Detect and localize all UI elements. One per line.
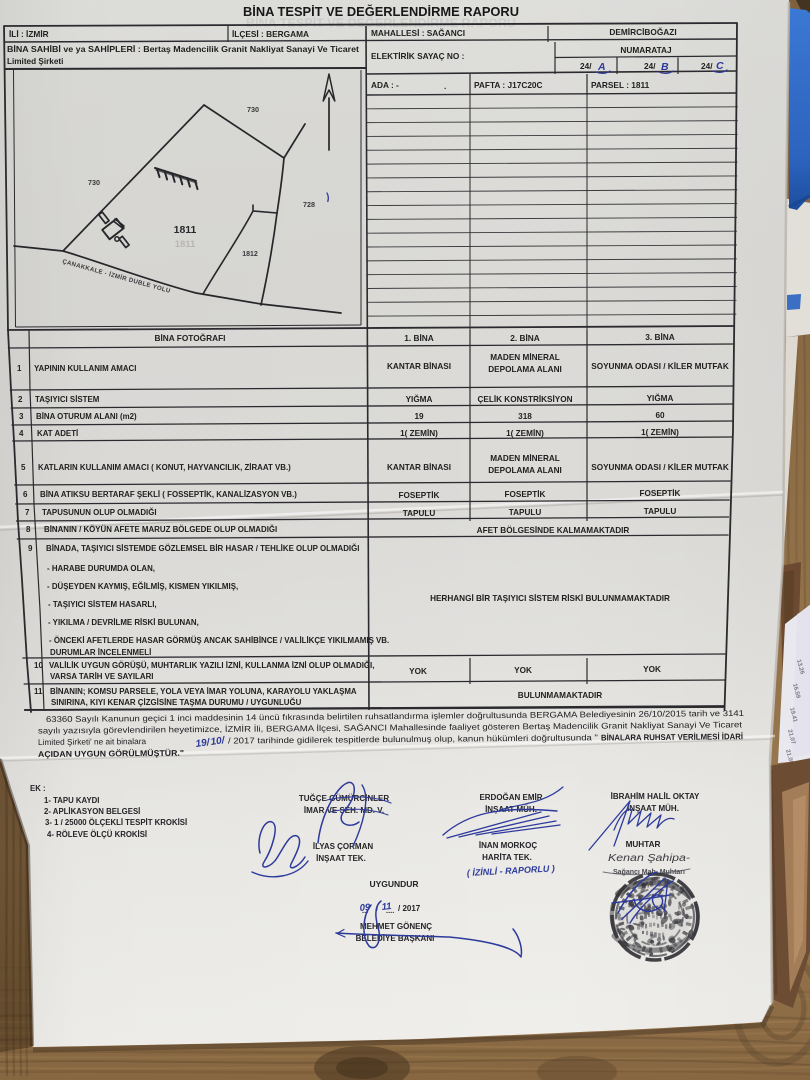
svg-text:İLYAS ÇORMAN: İLYAS ÇORMAN xyxy=(313,842,374,851)
svg-text:HERHANGİ BİR TAŞIYICI SİSTEM R: HERHANGİ BİR TAŞIYICI SİSTEM RİSKİ BULUN… xyxy=(430,593,670,603)
svg-text:2: 2 xyxy=(18,395,23,404)
svg-text:1811: 1811 xyxy=(174,224,197,236)
svg-text:BİNADA, TAŞIYICI SİSTEMDE GÖZL: BİNADA, TAŞIYICI SİSTEMDE GÖZLEMSEL BİR … xyxy=(46,544,359,553)
svg-text:YIĞMA: YIĞMA xyxy=(647,392,674,403)
svg-text:730: 730 xyxy=(247,105,259,114)
svg-text:1. BİNA: 1. BİNA xyxy=(404,333,434,343)
svg-text:Kenan Şahipa-: Kenan Şahipa- xyxy=(608,853,691,864)
svg-text:YOK: YOK xyxy=(409,667,427,676)
svg-text:B: B xyxy=(661,61,669,73)
svg-text:SOYUNMA ODASI / KİLER MUTFAK: SOYUNMA ODASI / KİLER MUTFAK xyxy=(591,361,729,371)
svg-text:1- TAPU KAYDI: 1- TAPU KAYDI xyxy=(44,796,99,805)
svg-text:6: 6 xyxy=(23,490,28,499)
svg-text:SOYUNMA ODASI / KİLER MUTFAK: SOYUNMA ODASI / KİLER MUTFAK xyxy=(591,462,729,472)
svg-text:MEHMET GÖNENÇ: MEHMET GÖNENÇ xyxy=(360,922,432,931)
svg-text:2- APLİKASYON BELGESİ: 2- APLİKASYON BELGESİ xyxy=(44,807,140,816)
svg-text:BİNANIN / KÖYÜN AFETE MARUZ BÖ: BİNANIN / KÖYÜN AFETE MARUZ BÖLGEDE OLUP… xyxy=(44,525,277,534)
svg-text:ADA : -: ADA : - xyxy=(371,80,399,90)
svg-text:C: C xyxy=(716,60,724,72)
svg-text:ÇELİK KONSTRİKSİYON: ÇELİK KONSTRİKSİYON xyxy=(477,394,572,404)
svg-text:DURUMLAR İNCELENMELİ: DURUMLAR İNCELENMELİ xyxy=(50,648,151,657)
svg-text:SINIRINA, KIYI KENAR ÇİZGİSİNE: SINIRINA, KIYI KENAR ÇİZGİSİNE TAŞMA DUR… xyxy=(51,698,302,707)
svg-text:Limited Şirketi: Limited Şirketi xyxy=(7,57,63,66)
svg-text:5: 5 xyxy=(21,463,26,472)
svg-text:.: . xyxy=(444,81,446,91)
svg-text:1( ZEMİN): 1( ZEMİN) xyxy=(506,428,544,438)
svg-text:3. BİNA: 3. BİNA xyxy=(645,332,675,342)
svg-text:11: 11 xyxy=(381,901,392,913)
svg-text:BİNALARA RUHSAT VERİLMESİ İDAR: BİNALARA RUHSAT VERİLMESİ İDARİ xyxy=(601,731,743,742)
svg-text:ERDOĞAN EMİR: ERDOĞAN EMİR xyxy=(479,793,542,802)
svg-text:TAPUSUNUN OLUP OLMADIĞI: TAPUSUNUN OLUP OLMADIĞI xyxy=(42,508,157,517)
svg-text:TAPULU: TAPULU xyxy=(403,509,436,518)
svg-text:MADEN MİNERAL: MADEN MİNERAL xyxy=(490,453,560,463)
svg-text:A: A xyxy=(597,61,606,73)
svg-text:İNŞAAT MÜH.: İNŞAAT MÜH. xyxy=(627,804,679,813)
svg-text:ELEKTİRİK SAYAÇ NO :: ELEKTİRİK SAYAÇ NO : xyxy=(371,51,464,61)
svg-text:TAŞIYICI SİSTEM: TAŞIYICI SİSTEM xyxy=(35,395,100,404)
svg-text:DEPOLAMA ALANI: DEPOLAMA ALANI xyxy=(488,365,562,374)
svg-text:İLÇESİ : BERGAMA: İLÇESİ : BERGAMA xyxy=(232,29,309,39)
svg-text:PARSEL : 1811: PARSEL : 1811 xyxy=(591,80,650,90)
svg-text:İNŞAAT TEK.: İNŞAAT TEK. xyxy=(316,854,366,863)
svg-text:İNAN MORKOÇ: İNAN MORKOÇ xyxy=(479,841,537,850)
svg-text:MADEN MİNERAL: MADEN MİNERAL xyxy=(490,352,560,362)
svg-text:- HARABE DURUMDA OLAN,: - HARABE DURUMDA OLAN, xyxy=(47,564,155,573)
svg-text:DEPOLAMA ALANI: DEPOLAMA ALANI xyxy=(488,466,562,475)
svg-text:7: 7 xyxy=(25,508,30,517)
svg-text:Limited Şirketi' ne ait bi: Limited Şirketi' ne ait binalara xyxy=(38,736,147,747)
svg-text:YIĞMA: YIĞMA xyxy=(406,393,433,404)
svg-text:BİNA OTURUM ALANI (m2): BİNA OTURUM ALANI (m2) xyxy=(36,412,137,421)
svg-text:24/: 24/ xyxy=(580,61,592,71)
svg-text:1( ZEMİN): 1( ZEMİN) xyxy=(641,427,679,437)
svg-text:BİNANIN; KOMSU PARSELE, YOLA V: BİNANIN; KOMSU PARSELE, YOLA VEYA İMAR Y… xyxy=(50,687,357,696)
svg-text:1812: 1812 xyxy=(242,251,258,258)
svg-text:VALİLİK UYGUN GÖRÜŞÜ, MUHTARLI: VALİLİK UYGUN GÖRÜŞÜ, MUHTARLIK YAZILI İ… xyxy=(49,661,374,670)
svg-text:3- 1 / 25000 ÖLÇEKLİ TESPİT K: 3- 1 / 25000 ÖLÇEKLİ TESPİT KROKİSİ xyxy=(45,818,187,827)
svg-text:EK :: EK : xyxy=(30,784,46,793)
svg-text:TAPULU: TAPULU xyxy=(509,508,542,517)
svg-text:FOSEPTİK: FOSEPTİK xyxy=(505,489,546,499)
svg-text:İBRAHİM HALİL OKTAY: İBRAHİM HALİL OKTAY xyxy=(611,792,700,801)
svg-text:11: 11 xyxy=(34,687,43,696)
svg-text:YOK: YOK xyxy=(514,666,532,675)
svg-text:- ÖNCEKİ AFETLERDE HASAR GÖRMÜ: - ÖNCEKİ AFETLERDE HASAR GÖRMÜŞ ANCAK SA… xyxy=(49,636,389,645)
svg-text:BİNA FOTOĞRAFI: BİNA FOTOĞRAFI xyxy=(155,332,226,343)
svg-text:KANTAR BİNASI: KANTAR BİNASI xyxy=(387,462,451,472)
svg-text:KAT ADETİ: KAT ADETİ xyxy=(37,429,78,438)
svg-text:730: 730 xyxy=(88,178,100,187)
svg-text:24/: 24/ xyxy=(701,61,713,71)
svg-text:DEMİRCİBOĞAZI: DEMİRCİBOĞAZI xyxy=(609,26,676,37)
svg-text:1( ZEMİN): 1( ZEMİN) xyxy=(400,428,438,438)
svg-text:- DÜŞEYDEN KAYMIŞ, EĞİLMİŞ, KI: - DÜŞEYDEN KAYMIŞ, EĞİLMİŞ, KISMEN YIKIL… xyxy=(47,582,238,591)
svg-text:- YIKILMA / DEVRİLME RİSKİ BUL: - YIKILMA / DEVRİLME RİSKİ BULUNAN, xyxy=(48,618,199,627)
svg-text:9: 9 xyxy=(28,544,33,553)
svg-text:FOSEPTİK: FOSEPTİK xyxy=(640,488,681,498)
svg-text:1811: 1811 xyxy=(175,239,196,250)
svg-text:/ 2017: / 2017 xyxy=(398,904,421,913)
svg-text:4: 4 xyxy=(19,429,24,438)
svg-text:VARSA TARİH VE SAYILARI: VARSA TARİH VE SAYILARI xyxy=(50,672,153,681)
svg-text:YAPININ KULLANIM AMACI: YAPININ KULLANIM AMACI xyxy=(34,364,136,373)
svg-text:İLİ : İZMİR: İLİ : İZMİR xyxy=(9,29,49,39)
svg-text:UYGUNDUR: UYGUNDUR xyxy=(369,879,418,889)
svg-text:318: 318 xyxy=(518,412,532,421)
svg-text:8: 8 xyxy=(26,525,31,534)
svg-text:1: 1 xyxy=(17,364,22,373)
svg-text:MAHALLESİ : SAĞANCI: MAHALLESİ : SAĞANCI xyxy=(371,27,465,38)
svg-text:- TAŞIYICI SİSTEM HASARLI,: - TAŞIYICI SİSTEM HASARLI, xyxy=(48,600,157,609)
svg-text:BİNA SAHİBİ ve ya SAHİPLERİ :: BİNA SAHİBİ ve ya SAHİPLERİ : Bertaş Mad… xyxy=(7,44,359,54)
svg-text:BULUNMAMAKTADIR: BULUNMAMAKTADIR xyxy=(518,691,603,700)
svg-text:10: 10 xyxy=(34,661,43,670)
svg-text:TAPULU: TAPULU xyxy=(644,507,677,516)
svg-text:24/: 24/ xyxy=(644,61,656,71)
svg-text:MUHTAR: MUHTAR xyxy=(626,840,661,849)
svg-text:KATLARIN KULLANIM AMACI ( KONU: KATLARIN KULLANIM AMACI ( KONUT, HAYVANC… xyxy=(38,463,291,472)
svg-text:2. BİNA: 2. BİNA xyxy=(510,333,540,343)
svg-text:KANTAR BİNASI: KANTAR BİNASI xyxy=(387,361,451,371)
svg-text:AFET BÖLGESİNDE KALMAMAKTADIR: AFET BÖLGESİNDE KALMAMAKTADIR xyxy=(477,525,630,535)
svg-text:3: 3 xyxy=(19,412,24,421)
svg-text:NUMARATAJ: NUMARATAJ xyxy=(620,45,672,55)
svg-text:FOSEPTİK: FOSEPTİK xyxy=(399,490,440,500)
svg-text:HARİTA TEK.: HARİTA TEK. xyxy=(482,853,532,862)
svg-text:AÇIDAN UYGUN GÖRÜLMÜŞTÜR.": AÇIDAN UYGUN GÖRÜLMÜŞTÜR." xyxy=(38,748,184,759)
svg-text:BİNA ATIKSU BERTARAF ŞEKLİ ( F: BİNA ATIKSU BERTARAF ŞEKLİ ( FOSSEPTİK, … xyxy=(40,490,297,499)
svg-text:60: 60 xyxy=(655,411,665,420)
svg-text:4- RÖLEVE ÖLÇÜ KROKİSİ: 4- RÖLEVE ÖLÇÜ KROKİSİ xyxy=(47,830,147,839)
svg-text:YOK: YOK xyxy=(643,665,661,674)
svg-text:PAFTA : J17C20C: PAFTA : J17C20C xyxy=(474,80,543,90)
svg-text:728: 728 xyxy=(303,200,315,209)
svg-text:19: 19 xyxy=(414,412,424,421)
